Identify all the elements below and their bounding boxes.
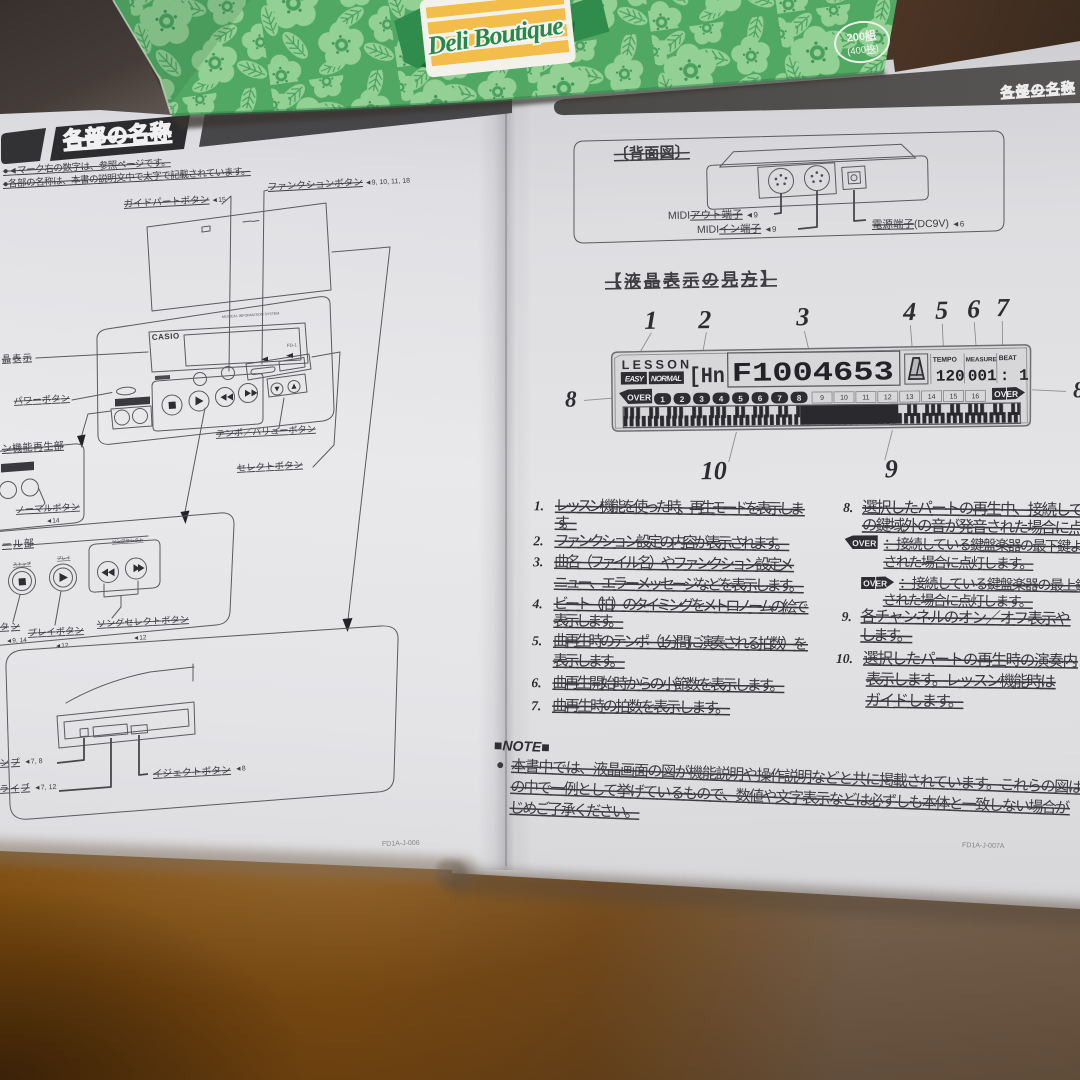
svg-text:14: 14	[928, 394, 936, 401]
svg-text:10.: 10.	[836, 651, 853, 666]
svg-text:MUSICAL INFORMATION SYSTEM: MUSICAL INFORMATION SYSTEM	[222, 311, 280, 319]
svg-text:2.: 2.	[532, 533, 543, 548]
svg-text:ファンクション設定の内容が表示されます。: ファンクション設定の内容が表示されます。	[554, 532, 789, 552]
svg-text:MIDIアウト端子 ◄9: MIDIアウト端子 ◄9	[668, 207, 759, 222]
svg-text:ソングセレクト: ソングセレクト	[112, 536, 144, 545]
svg-text:3.: 3.	[532, 554, 543, 569]
svg-text:9: 9	[885, 454, 898, 483]
svg-text:ライブ: ライブ	[0, 781, 30, 794]
svg-text:各チャンネルのオン／オフ表示や: 各チャンネルのオン／オフ表示や	[861, 607, 1071, 628]
svg-text:ファンクションボタン ◄9, 10, 11, 18: ファンクションボタン ◄9, 10, 11, 18	[268, 175, 411, 193]
svg-text:◄12: ◄12	[55, 642, 69, 650]
svg-text:[Hn: [Hn	[689, 364, 725, 389]
svg-text:8.: 8.	[843, 500, 853, 515]
svg-text:1: 1	[644, 306, 657, 335]
svg-text:OVER: OVER	[852, 538, 876, 548]
svg-text:選択したパートの再生時の演奏内: 選択したパートの再生時の演奏内	[863, 649, 1078, 670]
svg-text:パワーボタン: パワーボタン	[14, 393, 70, 406]
svg-text:FD1A-J-007A: FD1A-J-007A	[962, 842, 1005, 850]
svg-text:6: 6	[967, 294, 980, 323]
svg-text:: 1: : 1	[1000, 367, 1029, 385]
svg-text:6.: 6.	[531, 675, 541, 690]
svg-text:タン: タン	[0, 621, 20, 632]
svg-text:曲名（ファイル名）やファンクション設定メ: 曲名（ファイル名）やファンクション設定メ	[554, 553, 794, 573]
svg-text:表示します。レッスン機能時は: 表示します。レッスン機能時は	[866, 670, 1056, 691]
svg-text:4: 4	[902, 297, 916, 326]
svg-text:OVER: OVER	[627, 392, 651, 402]
svg-text:F1004653: F1004653	[732, 358, 894, 390]
svg-text:曲再生時のテンポ（1分間に演奏される拍数）を: 曲再生時のテンポ（1分間に演奏される拍数）を	[553, 632, 808, 653]
svg-text:5: 5	[738, 394, 743, 403]
svg-text:ン機能再生部: ン機能再生部	[1, 439, 64, 455]
svg-text:6: 6	[758, 394, 763, 403]
svg-text:ンプ: ンプ	[0, 757, 20, 768]
svg-text:12: 12	[884, 394, 892, 401]
svg-text:8: 8	[1073, 377, 1080, 402]
svg-text:MEASURE: MEASURE	[966, 356, 997, 363]
svg-text:◄7, 12: ◄7, 12	[34, 784, 57, 792]
svg-text:BEAT: BEAT	[999, 355, 1018, 362]
svg-text:す。: す。	[555, 514, 577, 531]
svg-text:10: 10	[701, 456, 727, 485]
svg-text:された場合に点灯します。: された場合に点灯します。	[883, 591, 1033, 609]
svg-text:7: 7	[777, 394, 782, 403]
svg-text:された場合に点灯します。: された場合に点灯します。	[883, 553, 1033, 571]
svg-text:9.: 9.	[842, 609, 852, 624]
svg-text:【液晶表示の見方】: 【液晶表示の見方】	[605, 268, 777, 291]
svg-text:4.: 4.	[531, 596, 542, 611]
svg-text:◄7, 8: ◄7, 8	[24, 758, 43, 766]
svg-text:◄14: ◄14	[46, 517, 60, 525]
svg-text:：接続している鍵盤楽器の最上鍵: ：接続している鍵盤楽器の最上鍵	[899, 575, 1080, 594]
svg-text:ガイドします。: ガイドします。	[865, 691, 963, 710]
svg-text:3: 3	[795, 302, 809, 331]
svg-text:晶表示: 晶表示	[2, 351, 33, 364]
svg-text:5: 5	[935, 296, 948, 325]
svg-text:11: 11	[862, 394, 869, 401]
svg-text:NORMAL: NORMAL	[651, 374, 682, 383]
svg-text:OVER: OVER	[994, 389, 1018, 399]
svg-text:EASY: EASY	[625, 374, 645, 383]
svg-text:OVER: OVER	[863, 578, 887, 588]
svg-text:曲再生開始時からの小節数を表示します。: 曲再生開始時からの小節数を表示します。	[552, 673, 784, 694]
svg-text:レッスン機能を使った時、再生モードを表示しま: レッスン機能を使った時、再生モードを表示しま	[555, 497, 805, 517]
svg-text:プレイボタン: プレイボタン	[28, 625, 84, 638]
svg-text:9: 9	[820, 395, 824, 402]
svg-text:曲再生時の拍数を表示します。: 曲再生時の拍数を表示します。	[552, 697, 730, 716]
svg-text:MIDIイン端子 ◄9: MIDIイン端子 ◄9	[697, 222, 777, 236]
svg-text:表示します。: 表示します。	[553, 612, 623, 630]
svg-text:ノーマルボタン: ノーマルボタン	[16, 502, 80, 515]
svg-text:イジェクトボタン: イジェクトボタン	[153, 765, 231, 780]
svg-text:8: 8	[797, 394, 802, 403]
svg-text:13: 13	[906, 394, 914, 401]
svg-text:■NOTE■: ■NOTE■	[494, 737, 550, 755]
svg-text:◄8: ◄8	[235, 765, 246, 773]
svg-text:1: 1	[660, 395, 665, 404]
svg-text:ール部: ール部	[1, 536, 34, 551]
svg-text:7: 7	[996, 293, 1010, 322]
svg-text:◄12: ◄12	[133, 634, 147, 642]
svg-text:ストップ: ストップ	[13, 561, 32, 568]
svg-text:TEMPO: TEMPO	[933, 357, 957, 364]
svg-text:FD-1: FD-1	[287, 342, 298, 348]
svg-text:5.: 5.	[532, 633, 542, 648]
svg-text:ソングセレクトボタン: ソングセレクトボタン	[97, 613, 189, 629]
svg-text:します。: します。	[860, 626, 912, 645]
svg-text:FD1A-J-006: FD1A-J-006	[382, 840, 420, 848]
svg-text:2: 2	[680, 395, 685, 404]
svg-text:4: 4	[719, 395, 724, 404]
svg-text:の鍵域外の音が発音された場合に点: の鍵域外の音が発音された場合に点	[862, 516, 1080, 537]
svg-text:電源端子(DC9V) ◄6: 電源端子(DC9V) ◄6	[872, 216, 965, 231]
svg-text:：接続している鍵盤楽器の最下鍵よ: ：接続している鍵盤楽器の最下鍵よ	[884, 535, 1080, 554]
svg-text:8: 8	[565, 387, 577, 412]
svg-text:001: 001	[968, 367, 997, 385]
svg-text:ニュー、エラーメッセージなどを表示します。: ニュー、エラーメッセージなどを表示します。	[554, 574, 804, 594]
svg-text:10: 10	[840, 395, 848, 402]
svg-text:CASIO: CASIO	[152, 331, 180, 342]
svg-text:7.: 7.	[531, 698, 541, 713]
svg-text:セレクトボタン: セレクトボタン	[237, 460, 303, 473]
svg-text:◄9, 14: ◄9, 14	[6, 637, 28, 645]
svg-text:120: 120	[936, 367, 965, 385]
svg-text:2: 2	[697, 305, 711, 334]
svg-text:3: 3	[699, 395, 704, 404]
svg-text:表示します。: 表示します。	[553, 652, 625, 670]
svg-text:16: 16	[971, 393, 979, 400]
svg-text:プレイ: プレイ	[57, 555, 71, 562]
svg-text:LESSON: LESSON	[622, 357, 693, 372]
svg-text:選択したパートの再生中、接続して: 選択したパートの再生中、接続して	[862, 498, 1080, 519]
svg-text:1.: 1.	[534, 498, 544, 513]
svg-text:じめご了承ください。: じめご了承ください。	[509, 800, 640, 822]
svg-text:ガイドパートボタン ◄15: ガイドパートボタン ◄15	[124, 194, 227, 210]
svg-text:15: 15	[950, 394, 958, 401]
